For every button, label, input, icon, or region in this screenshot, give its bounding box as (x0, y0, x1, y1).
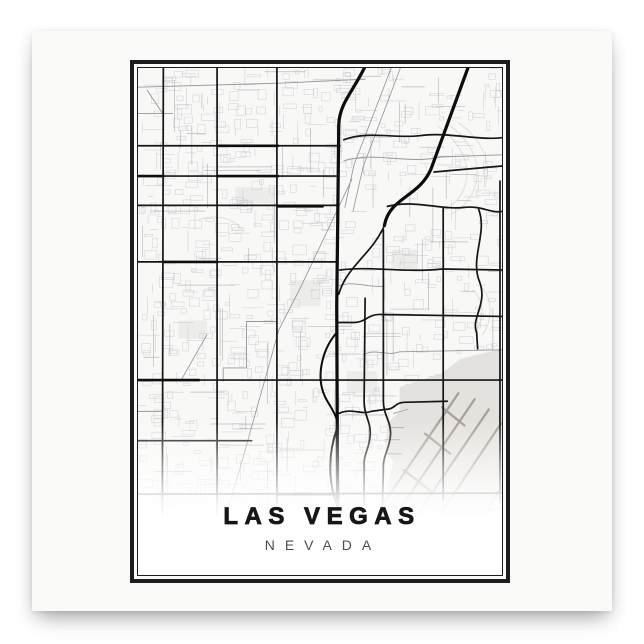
map-bottom-fade (138, 419, 502, 522)
block-patches (179, 187, 418, 393)
map-bottom-white (138, 518, 502, 575)
photo-print-sheet: LAS VEGAS NEVADA (32, 31, 612, 611)
map-outer-border: LAS VEGAS NEVADA (130, 60, 510, 583)
product-photo-background: LAS VEGAS NEVADA (0, 0, 644, 644)
contours (199, 123, 490, 335)
map-inner-border: LAS VEGAS NEVADA (137, 67, 503, 576)
las-vegas-street-map (138, 68, 502, 575)
